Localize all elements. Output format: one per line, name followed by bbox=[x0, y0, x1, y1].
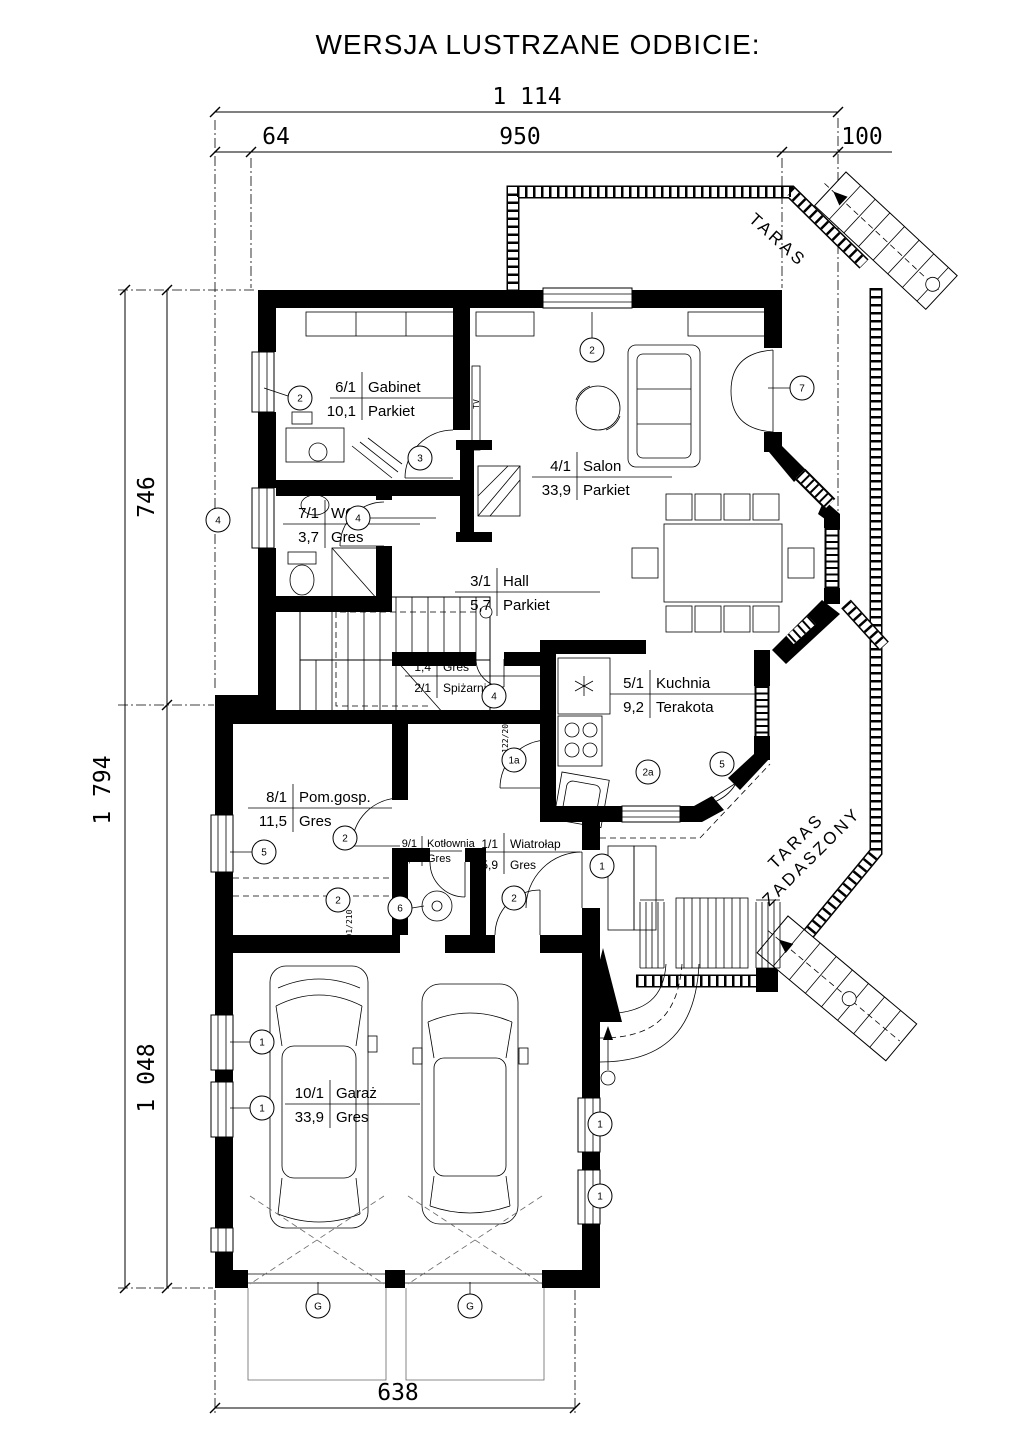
window-gabinet-left bbox=[252, 352, 274, 412]
room-area: 5,9 bbox=[481, 858, 498, 872]
window-garage-left-small bbox=[211, 1228, 233, 1252]
svg-text:2: 2 bbox=[589, 346, 595, 357]
label-kuchnia: 5/1 Kuchnia 9,2 Terakota bbox=[610, 670, 755, 718]
door-size-annotation-1: 122/207 bbox=[501, 719, 510, 753]
room-name: Gabinet bbox=[368, 379, 421, 396]
room-name: Garaż bbox=[336, 1085, 377, 1102]
marker-garage-window-r2: 1 bbox=[588, 1184, 612, 1208]
marker-garage-window-l1: 1 bbox=[250, 1030, 274, 1054]
window-wc-left bbox=[252, 488, 274, 548]
room-floor: Parkiet bbox=[583, 482, 631, 499]
room-num: 2/1 bbox=[414, 681, 431, 695]
room-floor: Gres bbox=[443, 660, 469, 674]
marker-front-door: 1 bbox=[590, 854, 614, 878]
marker-salon-window: 2 bbox=[580, 338, 604, 362]
room-num: 5/1 bbox=[623, 675, 644, 692]
marker-corridor-door: 1a bbox=[502, 748, 526, 772]
dim-left-total: 1 794 bbox=[90, 755, 116, 824]
taras-label: TARAS bbox=[745, 209, 810, 270]
tv-label: TV bbox=[472, 399, 481, 409]
window-kitchen-bottom bbox=[622, 806, 680, 822]
marker-pomgosp-window: 5 bbox=[252, 840, 276, 864]
window-salon-top bbox=[543, 288, 632, 308]
label-hall: 3/1 Hall 5,7 Parkiet bbox=[455, 568, 600, 616]
floor-plan-page: WERSJA LUSTRZANE ODBICIE: 1 114 64 950 1… bbox=[0, 0, 1024, 1448]
room-name: Pom.gosp. bbox=[299, 789, 371, 806]
label-pomgosp: 8/1 Pom.gosp. 11,5 Gres bbox=[248, 784, 392, 832]
door-french-salon bbox=[731, 350, 773, 432]
marker-garage-window-l2: 1 bbox=[250, 1096, 274, 1120]
room-num: 4/1 bbox=[550, 458, 571, 475]
drawing-title: WERSJA LUSTRZANE ODBICIE: bbox=[315, 29, 760, 60]
dimension-lines: 1 114 64 950 100 1 794 746 1 048 638 bbox=[90, 84, 892, 1416]
svg-text:2: 2 bbox=[335, 896, 341, 907]
svg-text:1: 1 bbox=[597, 1192, 603, 1203]
room-floor: Gres bbox=[510, 858, 536, 872]
room-area: 2,9 bbox=[402, 853, 417, 865]
svg-text:2: 2 bbox=[297, 394, 303, 405]
svg-text:1: 1 bbox=[259, 1104, 265, 1115]
fireplace bbox=[456, 440, 520, 542]
marker-gabinet-door: 3 bbox=[408, 446, 432, 470]
room-floor: Terakota bbox=[656, 699, 714, 716]
window-garage-left-2 bbox=[211, 1082, 233, 1137]
room-area: 11,5 bbox=[259, 813, 287, 830]
dim-left-746: 746 bbox=[134, 476, 160, 518]
room-name: Hall bbox=[503, 573, 529, 590]
dim-top-64: 64 bbox=[262, 124, 290, 150]
room-area: 10,1 bbox=[327, 403, 356, 420]
svg-text:2: 2 bbox=[342, 834, 348, 845]
terrace-post bbox=[756, 968, 778, 992]
room-floor: Gres bbox=[427, 853, 451, 865]
door-kotlownia bbox=[430, 862, 465, 897]
car-right bbox=[413, 984, 528, 1224]
tv-cabinet: TV bbox=[472, 366, 481, 450]
door-garage-opening-2 bbox=[405, 1274, 542, 1283]
marker-spizarnia-door: 4 bbox=[482, 684, 506, 708]
svg-text:2: 2 bbox=[511, 894, 517, 905]
label-gabinet: 6/1 Gabinet 10,1 Parkiet bbox=[327, 372, 460, 420]
marker-kitchen: 2a bbox=[636, 760, 660, 784]
dim-bottom-638: 638 bbox=[377, 1380, 419, 1406]
marker-salon-french-door: 7 bbox=[790, 376, 814, 400]
room-area: 1,4 bbox=[414, 660, 431, 674]
room-floor: Gres bbox=[331, 529, 364, 546]
room-name: Salon bbox=[583, 458, 621, 475]
marker-garage-door-2: G bbox=[458, 1294, 482, 1318]
svg-text:1: 1 bbox=[259, 1038, 265, 1049]
windows bbox=[211, 288, 680, 1252]
room-floor: Parkiet bbox=[503, 597, 551, 614]
boiler bbox=[422, 891, 452, 921]
room-num: 3/1 bbox=[470, 573, 491, 590]
salon-round-table bbox=[576, 386, 620, 430]
room-floor: Gres bbox=[299, 813, 332, 830]
marker-garage-door-1: G bbox=[306, 1294, 330, 1318]
window-garage-left-1 bbox=[211, 1015, 233, 1070]
door-size-annotation-2: 91/210 bbox=[345, 909, 354, 938]
room-area: 5,7 bbox=[470, 597, 491, 614]
dim-left-1048: 1 048 bbox=[134, 1043, 160, 1112]
label-salon: 4/1 Salon 33,9 Parkiet bbox=[532, 452, 672, 500]
svg-text:1: 1 bbox=[599, 862, 605, 873]
room-num: 6/1 bbox=[335, 379, 356, 396]
terrace-deck-slats bbox=[640, 898, 780, 968]
pomgosp-counter bbox=[233, 878, 390, 896]
room-num: 10/1 bbox=[295, 1085, 324, 1102]
room-area: 3,7 bbox=[298, 529, 319, 546]
svg-text:7: 7 bbox=[799, 384, 805, 395]
room-area: 33,9 bbox=[542, 482, 571, 499]
label-kotlownia: 9/1 Kotłownia 2,9 Gres bbox=[395, 836, 476, 866]
room-area: 9,2 bbox=[623, 699, 644, 716]
svg-text:5: 5 bbox=[261, 848, 267, 859]
site-elements bbox=[248, 764, 770, 1380]
room-name: Kuchnia bbox=[656, 675, 711, 692]
svg-text:4: 4 bbox=[215, 516, 221, 527]
marker-pomgosp-door-2: 2 bbox=[326, 888, 350, 912]
door-garage-opening-1 bbox=[248, 1274, 385, 1283]
marker-wc-window: 4 bbox=[206, 508, 230, 532]
room-name: Wiatrołap bbox=[510, 837, 561, 851]
window-pomgosp-left bbox=[211, 815, 233, 872]
dim-top-total: 1 114 bbox=[492, 84, 561, 110]
svg-text:1: 1 bbox=[597, 1120, 603, 1131]
marker-garage-window-r1: 1 bbox=[588, 1112, 612, 1136]
svg-text:2a: 2a bbox=[642, 768, 654, 779]
marker-wc-door: 4 bbox=[346, 506, 370, 530]
room-floor: Parkiet bbox=[368, 403, 416, 420]
dim-top-950: 950 bbox=[499, 124, 541, 150]
room-name: Kotłownia bbox=[427, 838, 476, 850]
svg-text:4: 4 bbox=[355, 514, 361, 525]
label-garaz: 10/1 Garaż 33,9 Gres bbox=[285, 1080, 420, 1128]
marker-kotlownia: 6 bbox=[388, 896, 412, 920]
room-num: 7/1 bbox=[298, 505, 319, 522]
room-num: 9/1 bbox=[402, 838, 417, 850]
svg-text:3: 3 bbox=[417, 454, 423, 465]
svg-text:G: G bbox=[466, 1302, 474, 1313]
kitchen-appliances bbox=[554, 658, 610, 828]
floor-plan-drawing: WERSJA LUSTRZANE ODBICIE: 1 114 64 950 1… bbox=[0, 0, 1024, 1448]
marker-wiatrolap-door: 2 bbox=[502, 886, 526, 910]
marker-kitchen-terrace-door: 5 bbox=[710, 752, 734, 776]
dim-top-100: 100 bbox=[841, 124, 883, 150]
marker-pomgosp-door: 2 bbox=[333, 826, 357, 850]
svg-text:4: 4 bbox=[491, 692, 497, 703]
svg-text:1a: 1a bbox=[508, 756, 520, 767]
front-steps bbox=[608, 846, 656, 930]
svg-text:5: 5 bbox=[719, 760, 725, 771]
room-area: 33,9 bbox=[295, 1109, 324, 1126]
label-wiatrolap: 1/1 Wiatrołap 5,9 Gres bbox=[472, 833, 580, 874]
room-num: 8/1 bbox=[266, 789, 287, 806]
room-floor: Gres bbox=[336, 1109, 369, 1126]
room-num: 1/1 bbox=[481, 837, 498, 851]
salon-sofa bbox=[628, 345, 700, 467]
marker-gabinet-window: 2 bbox=[288, 386, 312, 410]
svg-text:G: G bbox=[314, 1302, 322, 1313]
svg-text:6: 6 bbox=[397, 904, 403, 915]
